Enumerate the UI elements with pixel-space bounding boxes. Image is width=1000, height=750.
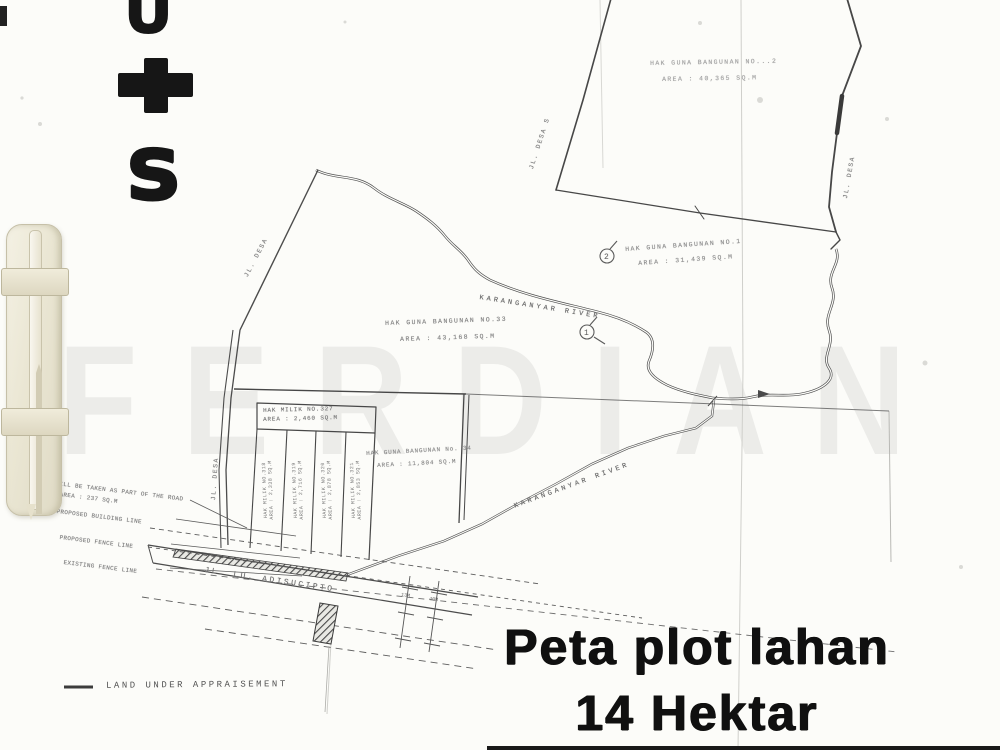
point-marker-2-number: 2: [604, 253, 609, 262]
map-title-line2: 14 Hektar: [480, 688, 914, 738]
strip-lot-321-area: AREA : 2,853 SQ.M: [355, 460, 364, 520]
plus-vertical-bar: [144, 58, 168, 113]
ruler-inner-pen-lower: [36, 364, 42, 514]
ruler-crossbar-top: [1, 268, 69, 296]
dimension-label-40m: 40M: [429, 596, 439, 603]
east-boundary-meander: [713, 249, 837, 399]
scanned-map-page: FERDIAN: [0, 0, 1000, 750]
point-marker-1-number: 1: [584, 329, 589, 338]
strip-lot-319-area: AREA : 2,716 SQ.M: [297, 460, 306, 520]
strip-lot-318-area: AREA : 2,338 SQ.M: [267, 460, 276, 520]
karanganyar-river-lower: [344, 400, 714, 576]
ruler-crossbar-bottom: [1, 408, 69, 436]
bottom-scan-strip: [487, 746, 1000, 750]
scanned-ruler-object: [6, 224, 62, 516]
stamp-letter-s: s: [126, 122, 181, 214]
stamp-plus-glyph: [118, 58, 193, 113]
culvert-hatch: [313, 603, 338, 644]
river-flow-arrow: [758, 390, 770, 398]
stamp-letter-u: U: [124, 0, 173, 42]
strip-lot-320-area: AREA : 2,878 SQ.M: [326, 460, 335, 520]
map-title-line1: Peta plot lahan: [480, 622, 914, 672]
karanganyar-river-upper: [316, 170, 770, 406]
dimension-label-13m: 13M: [401, 592, 411, 599]
culvert-extension-line: [325, 646, 329, 712]
scan-edge-mark: [0, 6, 7, 26]
legend-label: LAND UNDER APPRAISEMENT: [106, 679, 288, 691]
